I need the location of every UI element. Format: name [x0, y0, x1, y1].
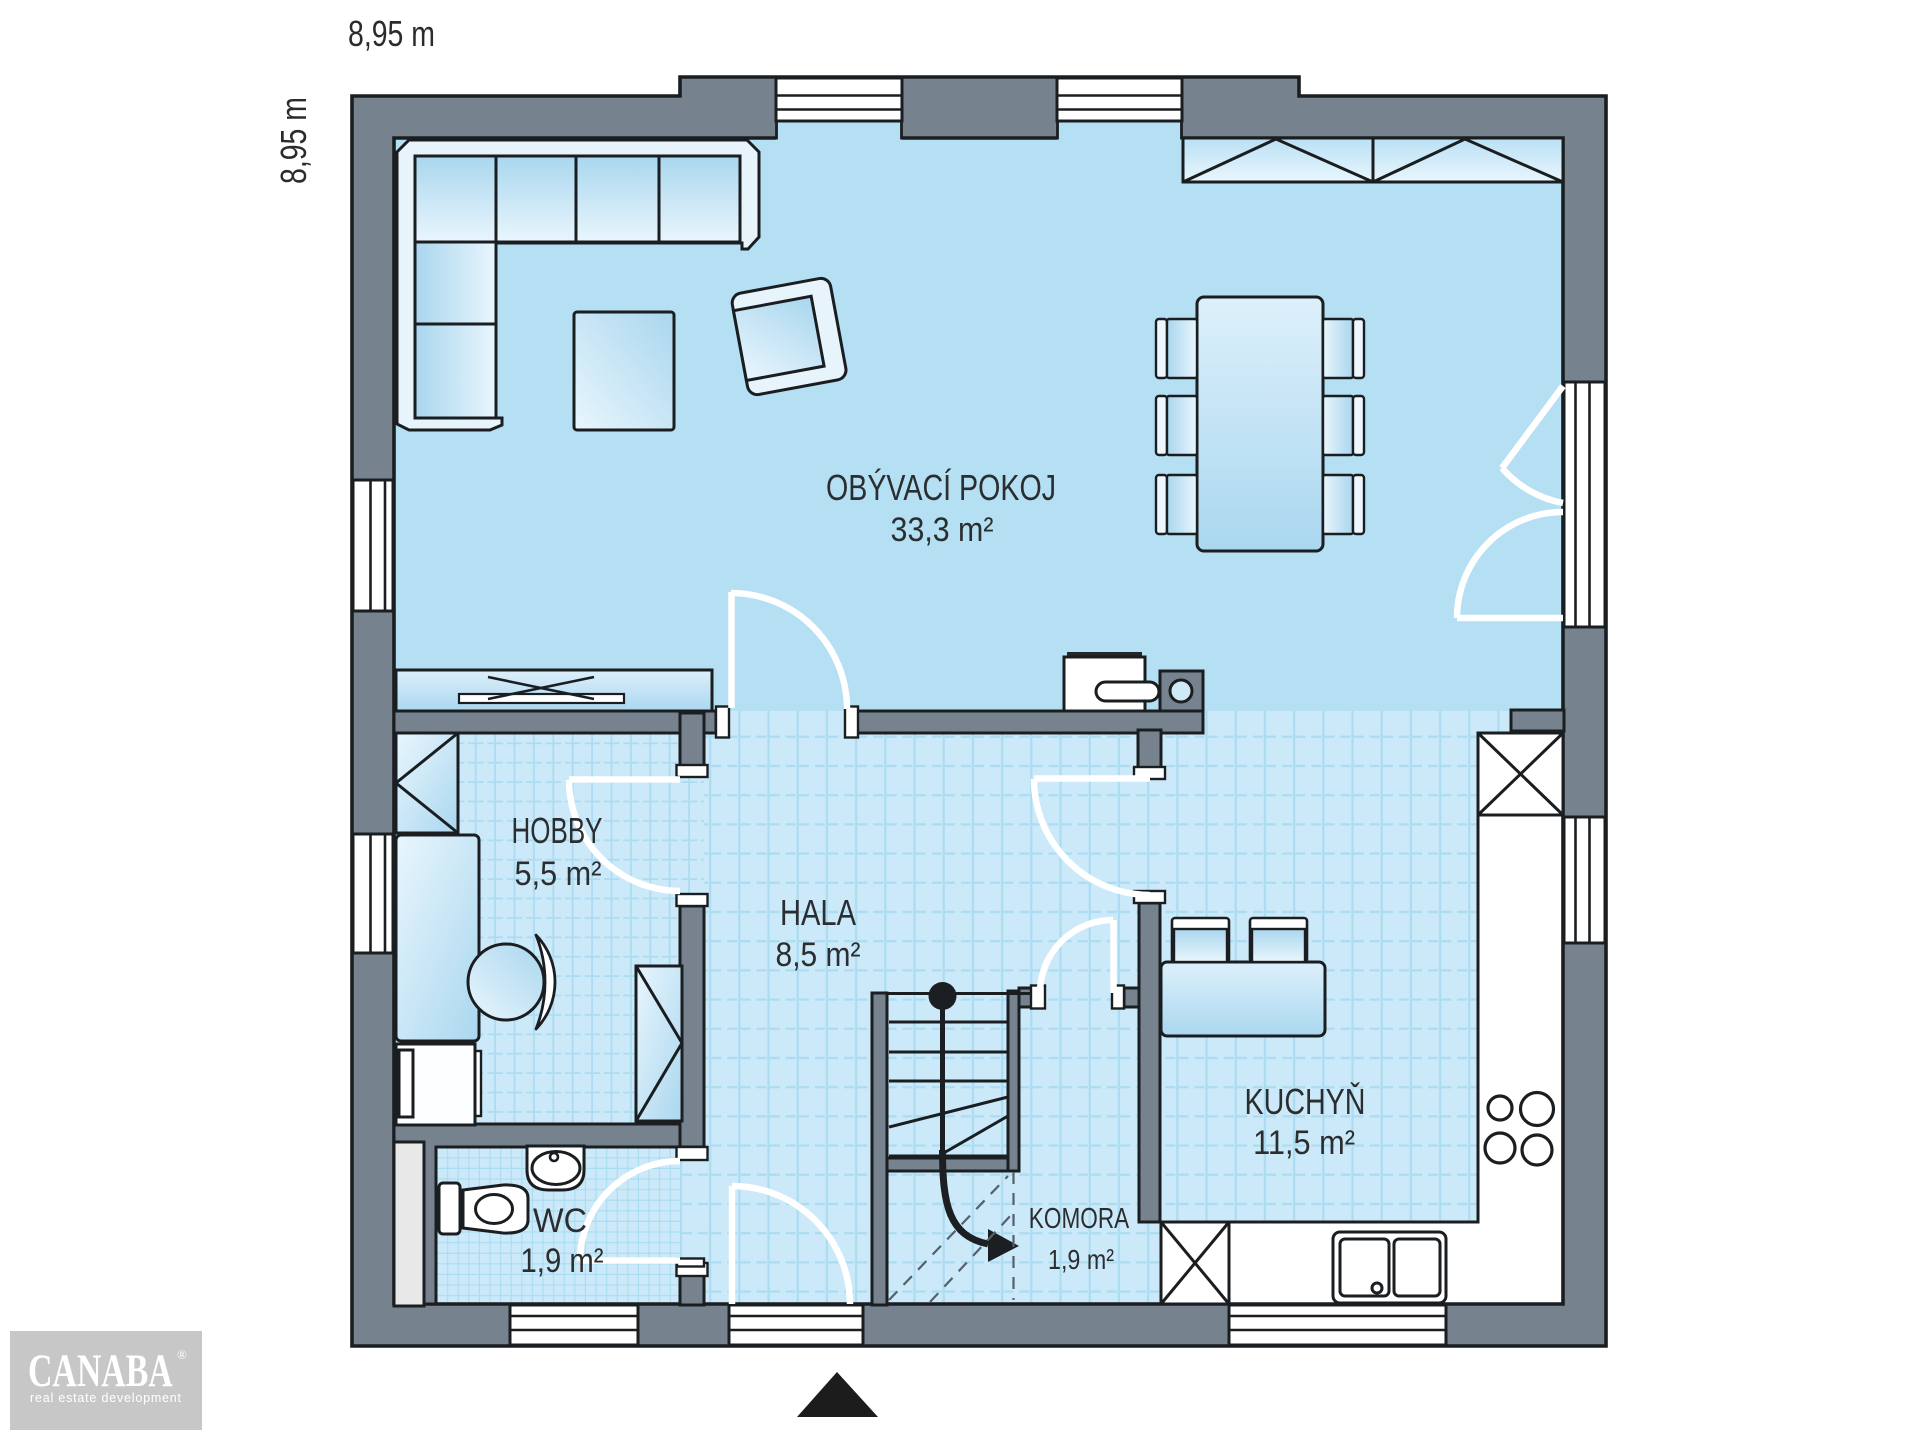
svg-text:11,5 m²: 11,5 m² — [1253, 1124, 1355, 1162]
svg-text:WC: WC — [533, 1202, 587, 1240]
svg-text:5,5 m²: 5,5 m² — [515, 855, 602, 893]
svg-text:8,95 m: 8,95 m — [348, 14, 435, 54]
svg-text:KOMORA: KOMORA — [1029, 1201, 1130, 1234]
svg-text:®: ® — [177, 1347, 187, 1362]
svg-text:33,3 m²: 33,3 m² — [891, 510, 994, 548]
svg-text:CANABA: CANABA — [28, 1345, 173, 1397]
svg-text:OBÝVACÍ POKOJ: OBÝVACÍ POKOJ — [826, 468, 1056, 508]
svg-text:1,9 m²: 1,9 m² — [521, 1241, 604, 1280]
svg-text:KUCHYŇ: KUCHYŇ — [1245, 1082, 1366, 1122]
svg-text:1,9 m²: 1,9 m² — [1048, 1245, 1114, 1275]
svg-text:HOBBY: HOBBY — [512, 811, 603, 851]
svg-text:8,95 m: 8,95 m — [274, 97, 314, 184]
svg-text:HALA: HALA — [780, 892, 856, 933]
svg-text:8,5 m²: 8,5 m² — [776, 935, 861, 973]
svg-text:real estate development: real estate development — [30, 1391, 182, 1405]
